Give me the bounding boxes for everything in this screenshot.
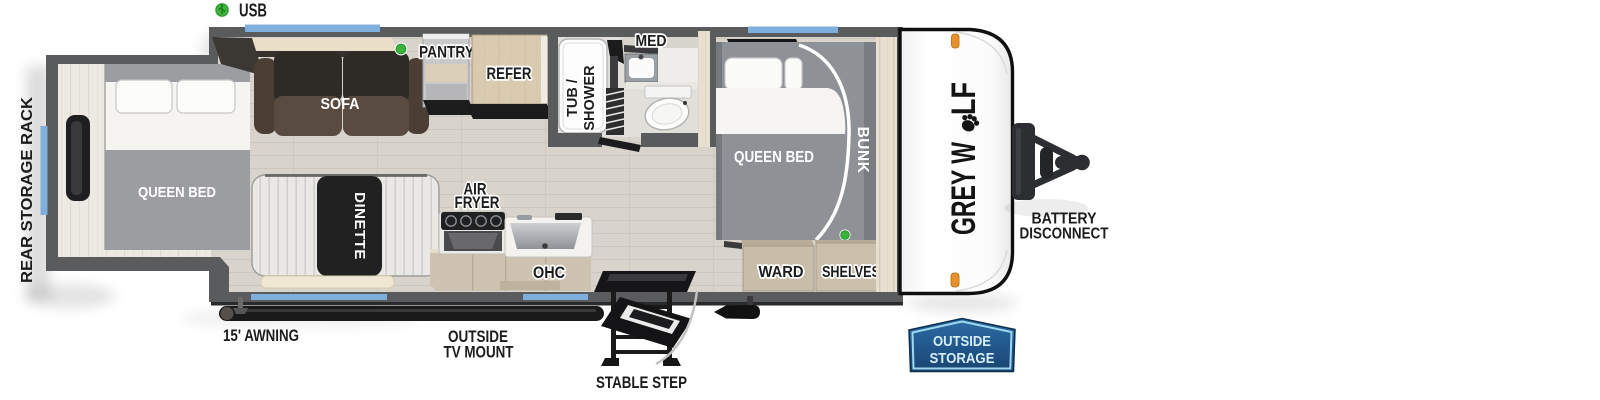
svg-text:15' AWNING: 15' AWNING [223,326,299,345]
svg-text:SHOWER: SHOWER [582,65,598,131]
svg-text:OUTSIDE: OUTSIDE [933,334,991,350]
svg-text:TV MOUNT: TV MOUNT [444,343,514,362]
svg-text:LF: LF [945,82,983,115]
svg-text:BUNK: BUNK [854,127,871,174]
svg-text:QUEEN BED: QUEEN BED [138,184,216,201]
svg-text:TUB /: TUB / [565,79,581,117]
svg-text:MED: MED [636,33,667,50]
svg-text:REFER: REFER [487,64,532,83]
svg-text:QUEEN BED: QUEEN BED [734,149,814,166]
svg-text:REAR STORAGE RACK: REAR STORAGE RACK [19,96,36,283]
svg-text:STABLE STEP: STABLE STEP [596,373,687,392]
svg-text:DINETTE: DINETTE [351,192,368,260]
svg-text:USB: USB [239,1,267,21]
svg-text:DISCONNECT: DISCONNECT [1020,226,1109,243]
svg-text:GREY W: GREY W [945,141,983,235]
svg-text:WARD: WARD [759,264,804,281]
svg-text:SOFA: SOFA [321,96,360,113]
svg-text:FRYER: FRYER [455,193,500,212]
svg-text:SHELVES: SHELVES [822,264,880,281]
svg-text:OHC: OHC [533,263,565,282]
svg-text:PANTRY: PANTRY [419,43,475,62]
svg-text:STORAGE: STORAGE [930,351,995,367]
